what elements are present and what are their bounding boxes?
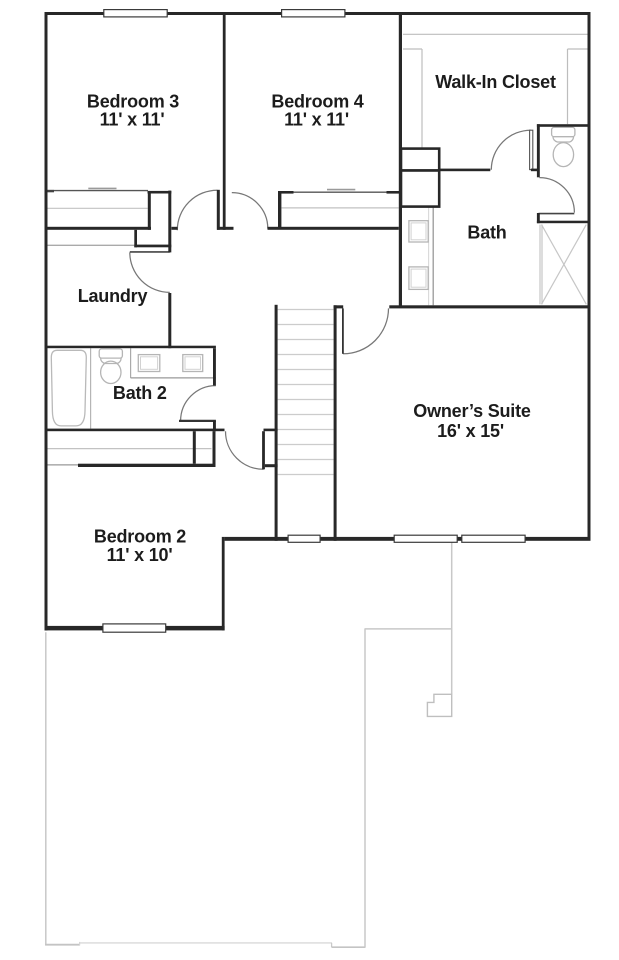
svg-text:Laundry: Laundry <box>78 286 148 306</box>
svg-text:Bath: Bath <box>467 222 506 242</box>
svg-text:16' x 15': 16' x 15' <box>437 421 504 441</box>
svg-text:11' x 11': 11' x 11' <box>100 109 165 129</box>
svg-text:Owner’s Suite: Owner’s Suite <box>413 401 531 421</box>
svg-text:11' x 10': 11' x 10' <box>107 545 173 565</box>
svg-text:Bedroom 2: Bedroom 2 <box>94 526 186 546</box>
svg-text:11' x 11': 11' x 11' <box>284 109 349 129</box>
svg-text:Bath 2: Bath 2 <box>113 383 167 403</box>
svg-text:Walk-In Closet: Walk-In Closet <box>435 72 556 92</box>
svg-text:Bedroom 3: Bedroom 3 <box>87 91 179 111</box>
svg-text:Bedroom 4: Bedroom 4 <box>271 91 363 111</box>
